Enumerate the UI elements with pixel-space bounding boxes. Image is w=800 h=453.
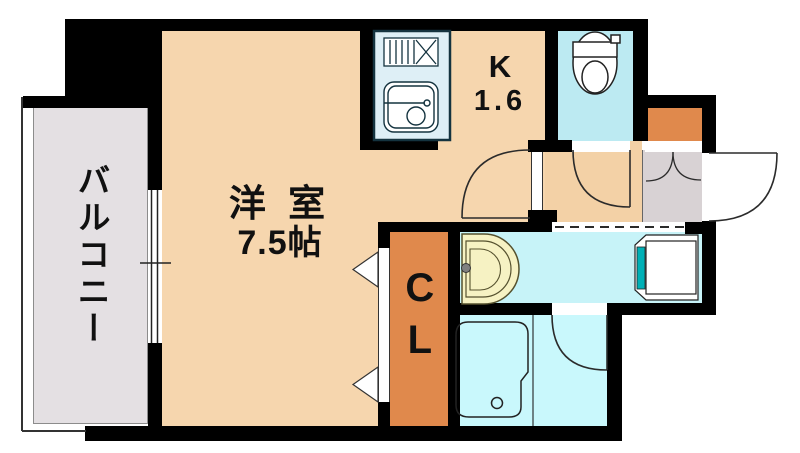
closet-label: CL	[397, 266, 442, 416]
living-room-name: 洋 室	[195, 183, 365, 224]
living-room-size: 7.5帖	[195, 224, 365, 262]
toilet-icon	[573, 32, 620, 94]
kitchen-size: 1.6	[452, 85, 548, 117]
closet-door-triangles	[353, 252, 378, 402]
balcony-label: バルコニー	[72, 163, 109, 393]
window-symbol	[140, 190, 171, 343]
floor-plan: 洋 室 7.5帖 K 1.6 CL バルコニー	[0, 0, 800, 453]
stove-icon	[384, 38, 438, 66]
kitchen-counter	[374, 31, 450, 140]
shoe-cabinet-door-arcs	[646, 152, 701, 181]
kitchen-label: K 1.6	[452, 50, 548, 117]
bathroom-door-arc	[552, 315, 607, 370]
washbasin-icon	[462, 234, 520, 304]
living-room-label: 洋 室 7.5帖	[195, 183, 365, 263]
washing-machine-pan-icon	[635, 235, 698, 300]
sink-icon	[384, 82, 438, 132]
kitchen-name: K	[452, 50, 548, 85]
entry-door-arc	[709, 153, 777, 221]
room-door-arc	[462, 150, 530, 218]
bathtub-icon	[456, 315, 533, 426]
toilet-door-arc	[573, 150, 630, 207]
